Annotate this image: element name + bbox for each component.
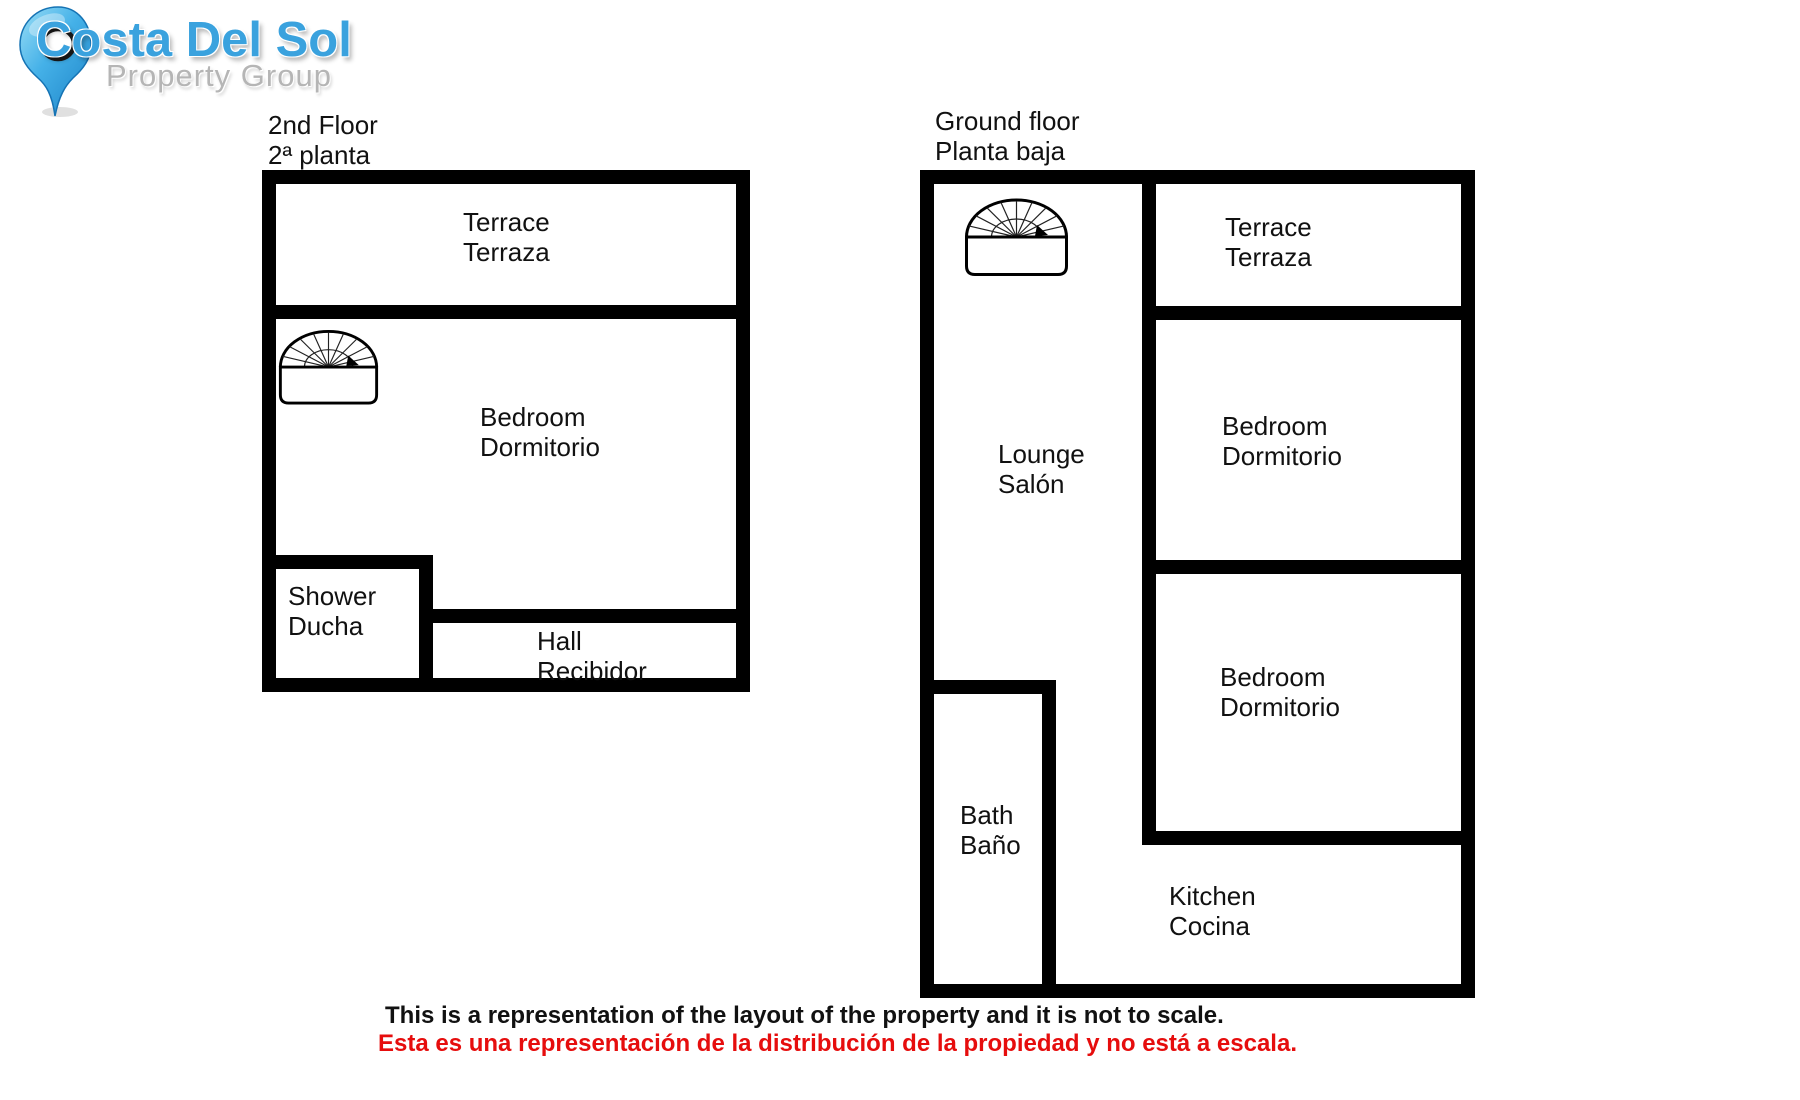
gf-wall-terrace-bottom [1142, 306, 1475, 320]
sf-wall-outer-left [262, 170, 276, 692]
spiral-staircase-icon [277, 328, 380, 407]
ground-floor-title-en: Ground floor [935, 106, 1080, 136]
gf-wall-bedroom2-bottom [1142, 831, 1475, 845]
sf-bedroom-label: Bedroom Dormitorio [480, 402, 600, 462]
sf-shower-es: Ducha [288, 611, 376, 641]
sf-hall-en: Hall [537, 626, 647, 656]
gf-kitchen-label: Kitchen Cocina [1169, 881, 1256, 941]
sf-bedroom-en: Bedroom [480, 402, 600, 432]
sf-bedroom-es: Dormitorio [480, 432, 600, 462]
gf-bath-es: Baño [960, 830, 1021, 860]
gf-terrace-en: Terrace [1225, 212, 1312, 242]
sf-wall-outer-bottom [262, 678, 750, 692]
gf-bedroom2-es: Dormitorio [1220, 692, 1340, 722]
gf-lounge-en: Lounge [998, 439, 1085, 469]
sf-shower-en: Shower [288, 581, 376, 611]
gf-wall-outer-left [920, 170, 934, 998]
gf-wall-bath-right [1042, 680, 1056, 998]
floor-plan-page: Costa Del Sol Property Group 2nd Floor 2… [0, 0, 1800, 1100]
ground-floor-title: Ground floor Planta baja [935, 106, 1080, 166]
gf-kitchen-en: Kitchen [1169, 881, 1256, 911]
gf-wall-bath-top [920, 680, 1056, 694]
sf-wall-shower-top [262, 555, 433, 569]
gf-kitchen-es: Cocina [1169, 911, 1256, 941]
gf-bath-label: Bath Baño [960, 800, 1021, 860]
gf-bath-en: Bath [960, 800, 1021, 830]
sf-terrace-label: Terrace Terraza [463, 207, 550, 267]
sf-shower-label: Shower Ducha [288, 581, 376, 641]
gf-wall-outer-top [920, 170, 1475, 184]
brand-tagline: Property Group [106, 60, 332, 91]
sf-terrace-en: Terrace [463, 207, 550, 237]
second-floor-title-es: 2ª planta [268, 140, 378, 170]
disclaimer-spanish: Esta es una representación de la distrib… [378, 1030, 1297, 1058]
gf-bedroom2-label: Bedroom Dormitorio [1220, 662, 1340, 722]
second-floor-title-en: 2nd Floor [268, 110, 378, 140]
gf-bedroom1-es: Dormitorio [1222, 441, 1342, 471]
gf-bedroom1-en: Bedroom [1222, 411, 1342, 441]
gf-wall-lounge-divider [1142, 170, 1156, 845]
gf-lounge-label: Lounge Salón [998, 439, 1085, 499]
sf-wall-terrace-divider [262, 305, 750, 319]
gf-wall-bedroom1-bottom [1142, 560, 1475, 574]
ground-floor-title-es: Planta baja [935, 136, 1080, 166]
sf-wall-shower-right [419, 555, 433, 692]
gf-wall-outer-bottom [920, 984, 1475, 998]
sf-terrace-es: Terraza [463, 237, 550, 267]
gf-wall-outer-right [1461, 170, 1475, 998]
second-floor-title: 2nd Floor 2ª planta [268, 110, 378, 170]
gf-bedroom2-en: Bedroom [1220, 662, 1340, 692]
spiral-staircase-icon [963, 197, 1070, 278]
sf-wall-outer-top [262, 170, 750, 184]
sf-hall-es: Recibidor [537, 656, 647, 686]
gf-bedroom1-label: Bedroom Dormitorio [1222, 411, 1342, 471]
sf-wall-hall-top [419, 609, 750, 623]
gf-lounge-es: Salón [998, 469, 1085, 499]
gf-terrace-label: Terrace Terraza [1225, 212, 1312, 272]
sf-hall-label: Hall Recibidor [537, 626, 647, 686]
gf-terrace-es: Terraza [1225, 242, 1312, 272]
disclaimer-english: This is a representation of the layout o… [385, 1002, 1224, 1030]
